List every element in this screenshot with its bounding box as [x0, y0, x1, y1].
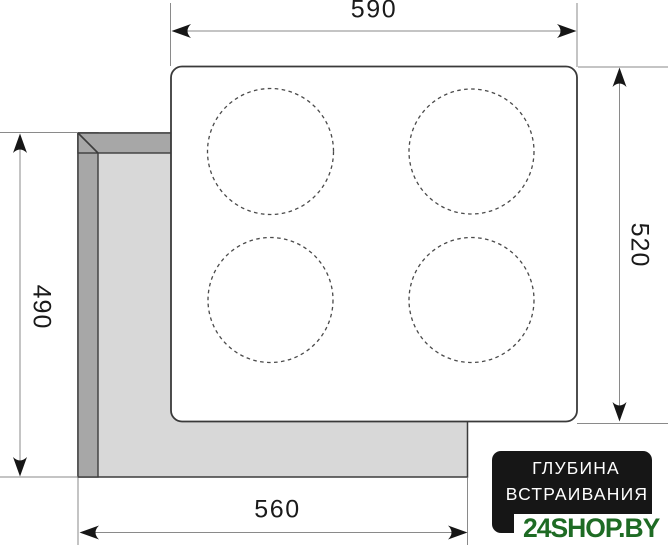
svg-text:590: 590 [351, 0, 398, 24]
svg-text:560: 560 [254, 496, 301, 524]
svg-text:ГЛУБИНА: ГЛУБИНА [532, 458, 620, 478]
svg-text:520: 520 [626, 223, 654, 268]
svg-text:24SHOP.BY: 24SHOP.BY [523, 513, 661, 543]
svg-text:ВСТРАИВАНИЯ: ВСТРАИВАНИЯ [506, 484, 648, 504]
svg-text:490: 490 [28, 285, 56, 330]
